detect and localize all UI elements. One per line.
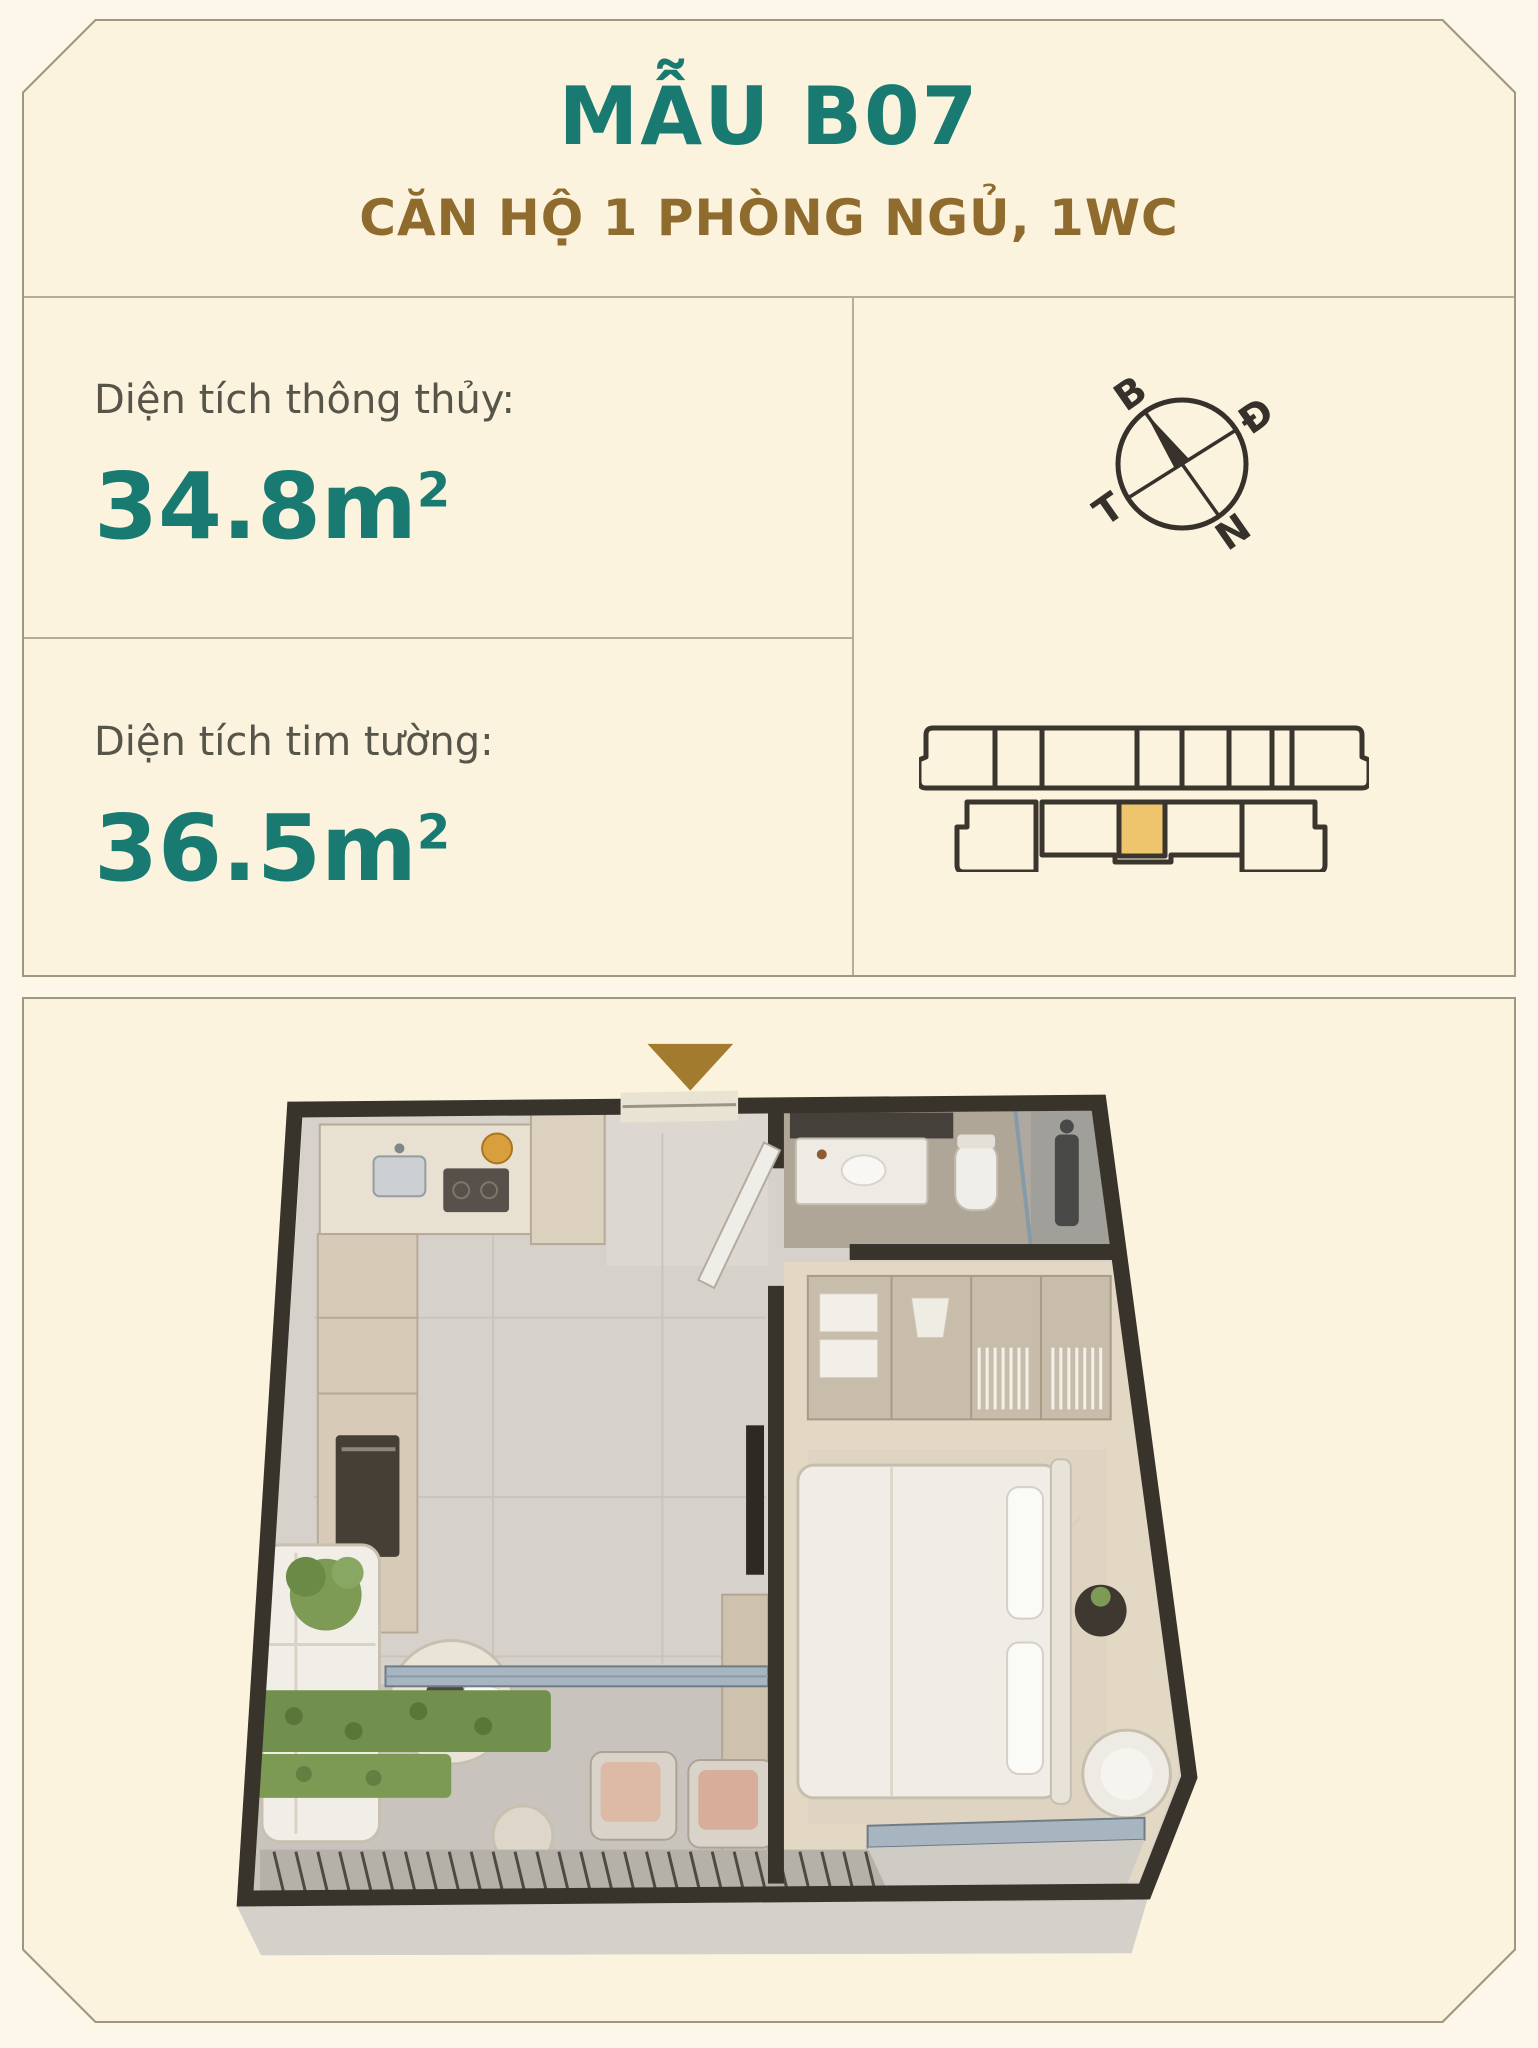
area-gross-cell: Diện tích tim tường: 36.5m2 xyxy=(94,719,494,895)
compass-icon: B Đ T N xyxy=(1052,344,1312,584)
info-card-surface: MẪU B07 CĂN HỘ 1 PHÒNG NGỦ, 1WC Diện tíc… xyxy=(24,21,1514,975)
tower-bottom-left-unit xyxy=(957,802,1036,872)
info-card: MẪU B07 CĂN HỘ 1 PHÒNG NGỦ, 1WC Diện tíc… xyxy=(22,19,1516,977)
fruit-bowl xyxy=(482,1133,512,1163)
orientation-column: B Đ T N xyxy=(854,298,1514,975)
area-net-value: 34.8m2 xyxy=(94,461,515,553)
threshold xyxy=(623,1105,737,1107)
area-gross-exponent: 2 xyxy=(417,804,450,860)
pantry-cabinet xyxy=(531,1111,605,1244)
area-gross-value: 36.5m2 xyxy=(94,803,494,895)
page-subtitle: CĂN HỘ 1 PHÒNG NGỦ, 1WC xyxy=(359,189,1178,247)
compass-needle xyxy=(1145,412,1189,469)
tv xyxy=(746,1425,764,1574)
toilet xyxy=(955,1142,997,1210)
planter-2 xyxy=(256,1754,451,1798)
area-gross-unit: m xyxy=(321,795,417,902)
headboard xyxy=(1051,1459,1071,1804)
page-title: MẪU B07 xyxy=(559,70,980,163)
building-locator-diagram xyxy=(919,725,1369,872)
vanity-counter xyxy=(790,1113,953,1139)
page: MẪU B07 CĂN HỘ 1 PHÒNG NGỦ, 1WC Diện tíc… xyxy=(0,0,1538,2048)
faucet xyxy=(394,1143,404,1153)
area-net-number: 34.8 xyxy=(94,453,321,560)
area-net-label: Diện tích thông thủy: xyxy=(94,377,515,423)
entrance-arrow-icon xyxy=(647,1044,733,1091)
bag xyxy=(911,1298,949,1338)
area-net-exponent: 2 xyxy=(417,462,450,518)
tower-bottom-right-unit xyxy=(1242,802,1325,872)
tower-top-outline xyxy=(919,728,1369,788)
area-net-unit: m xyxy=(321,453,417,560)
floor-plan xyxy=(24,999,1514,2021)
title-block: MẪU B07 CĂN HỘ 1 PHÒNG NGỦ, 1WC xyxy=(24,21,1514,296)
basin xyxy=(842,1155,886,1185)
floorplan-card xyxy=(22,997,1516,2023)
pillow xyxy=(1007,1487,1043,1618)
highlighted-unit xyxy=(1119,802,1165,856)
oven xyxy=(336,1435,400,1557)
area-net-cell: Diện tích thông thủy: 34.8m2 xyxy=(94,377,515,553)
divider-horizontal-left xyxy=(24,637,852,639)
hanging-clothes xyxy=(979,1348,1027,1410)
area-gross-label: Diện tích tim tường: xyxy=(94,719,494,765)
pillow-2 xyxy=(1007,1642,1043,1773)
floorplan-card-surface xyxy=(24,999,1514,2021)
plan-base-shadow xyxy=(237,1899,1147,1955)
area-gross-number: 36.5 xyxy=(94,795,321,902)
sink xyxy=(374,1156,426,1196)
